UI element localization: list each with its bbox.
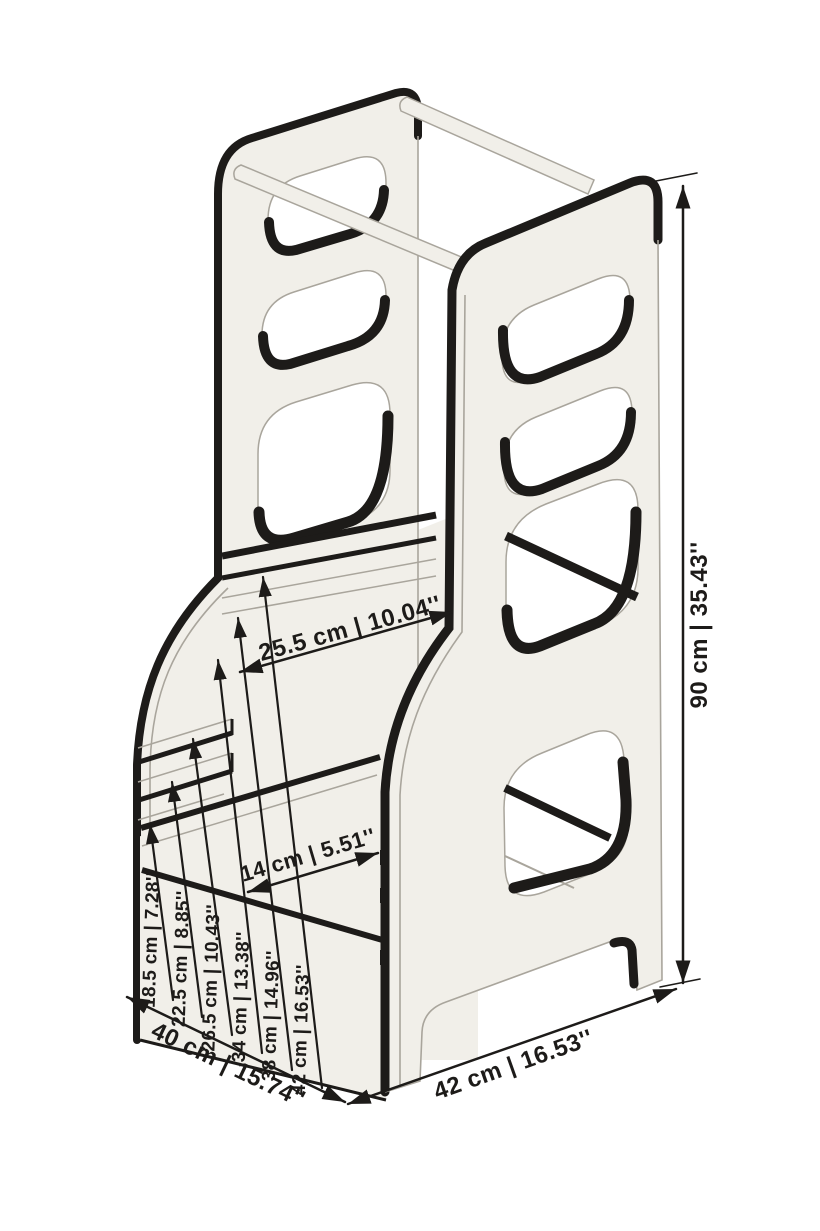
foot-arch-shadow [614, 942, 634, 984]
dim-overall-height: 90 cm | 35.43'' [656, 173, 713, 987]
dim-label-height: 90 cm | 35.43'' [686, 541, 713, 708]
joint-slot [380, 850, 389, 865]
back-rail [400, 97, 594, 194]
joint-slot [380, 950, 389, 965]
dim-extension-tick [656, 173, 697, 181]
joint-slot [380, 888, 389, 903]
dimension-diagram: 90 cm | 35.43'' 25.5 cm | 10.04'' 14 cm … [0, 0, 820, 1231]
dim-extension-tick [660, 979, 700, 987]
